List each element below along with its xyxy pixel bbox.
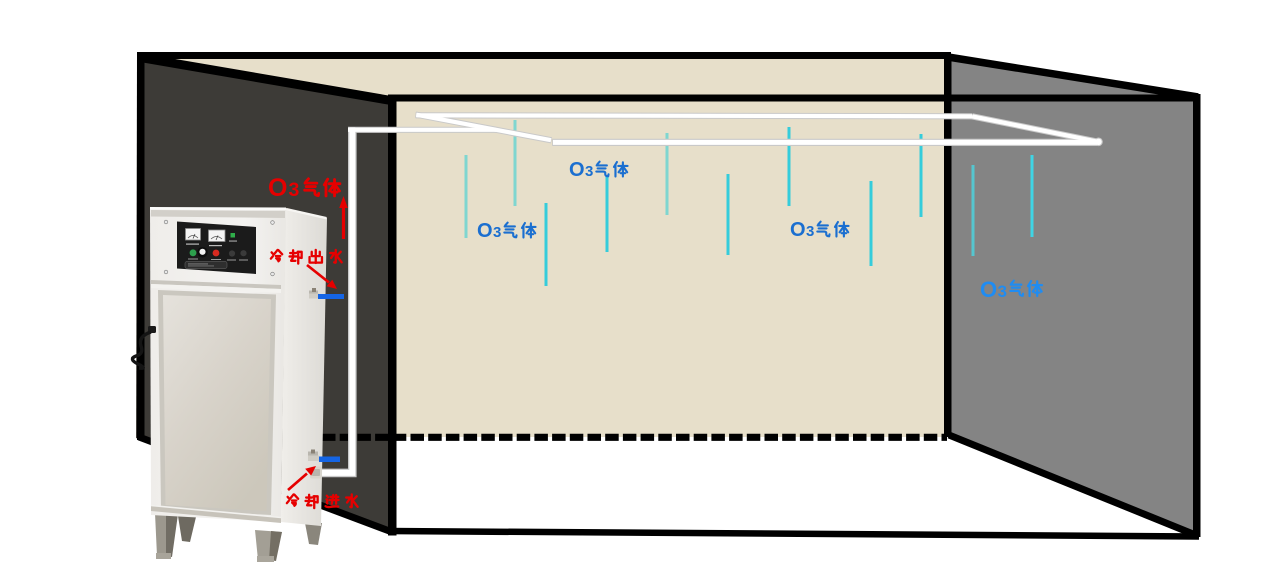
svg-text:3: 3 (289, 179, 300, 201)
svg-text:3: 3 (585, 163, 593, 180)
svg-text:O: O (268, 174, 287, 202)
svg-text:O: O (980, 277, 997, 302)
svg-text:O: O (569, 159, 585, 181)
svg-text:3: 3 (998, 282, 1007, 301)
